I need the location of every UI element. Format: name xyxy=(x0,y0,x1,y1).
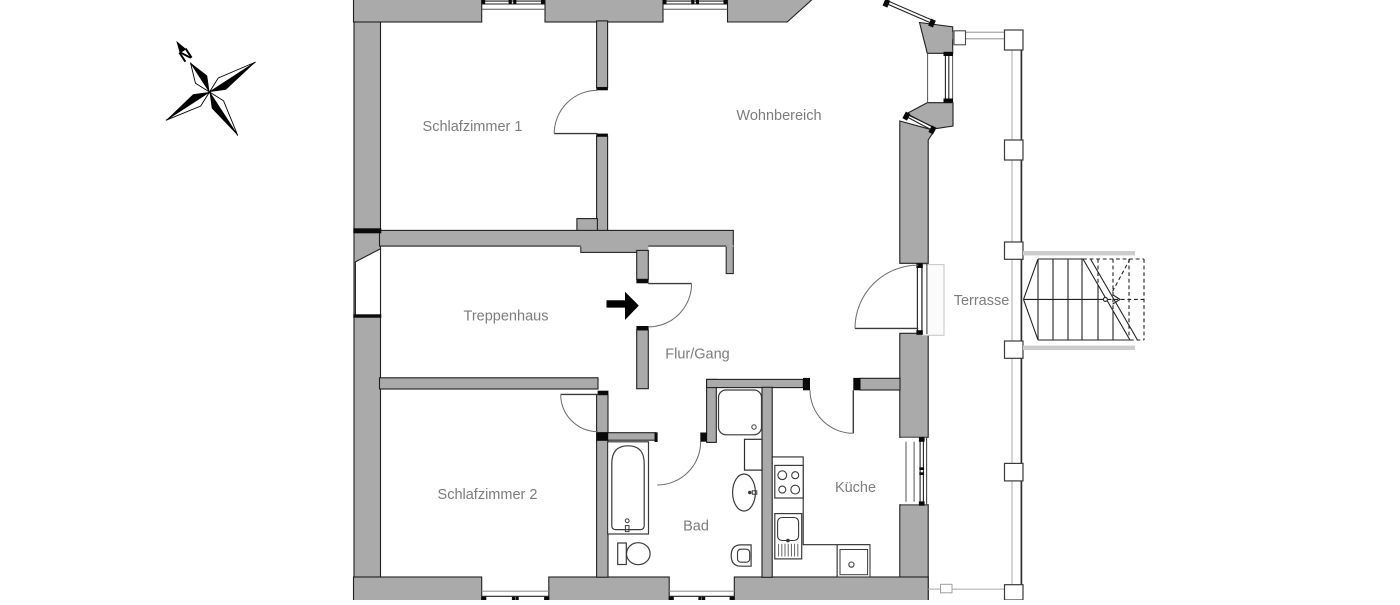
svg-text:Treppenhaus: Treppenhaus xyxy=(464,309,549,325)
svg-text:Flur/Gang: Flur/Gang xyxy=(665,347,729,363)
svg-text:Küche: Küche xyxy=(835,480,876,496)
svg-text:Schlafzimmer 2: Schlafzimmer 2 xyxy=(438,487,538,503)
svg-text:Schlafzimmer 1: Schlafzimmer 1 xyxy=(423,119,523,135)
svg-text:Terrasse: Terrasse xyxy=(954,293,1010,309)
svg-text:Bad: Bad xyxy=(683,519,709,535)
svg-text:Wohnbereich: Wohnbereich xyxy=(736,108,821,124)
